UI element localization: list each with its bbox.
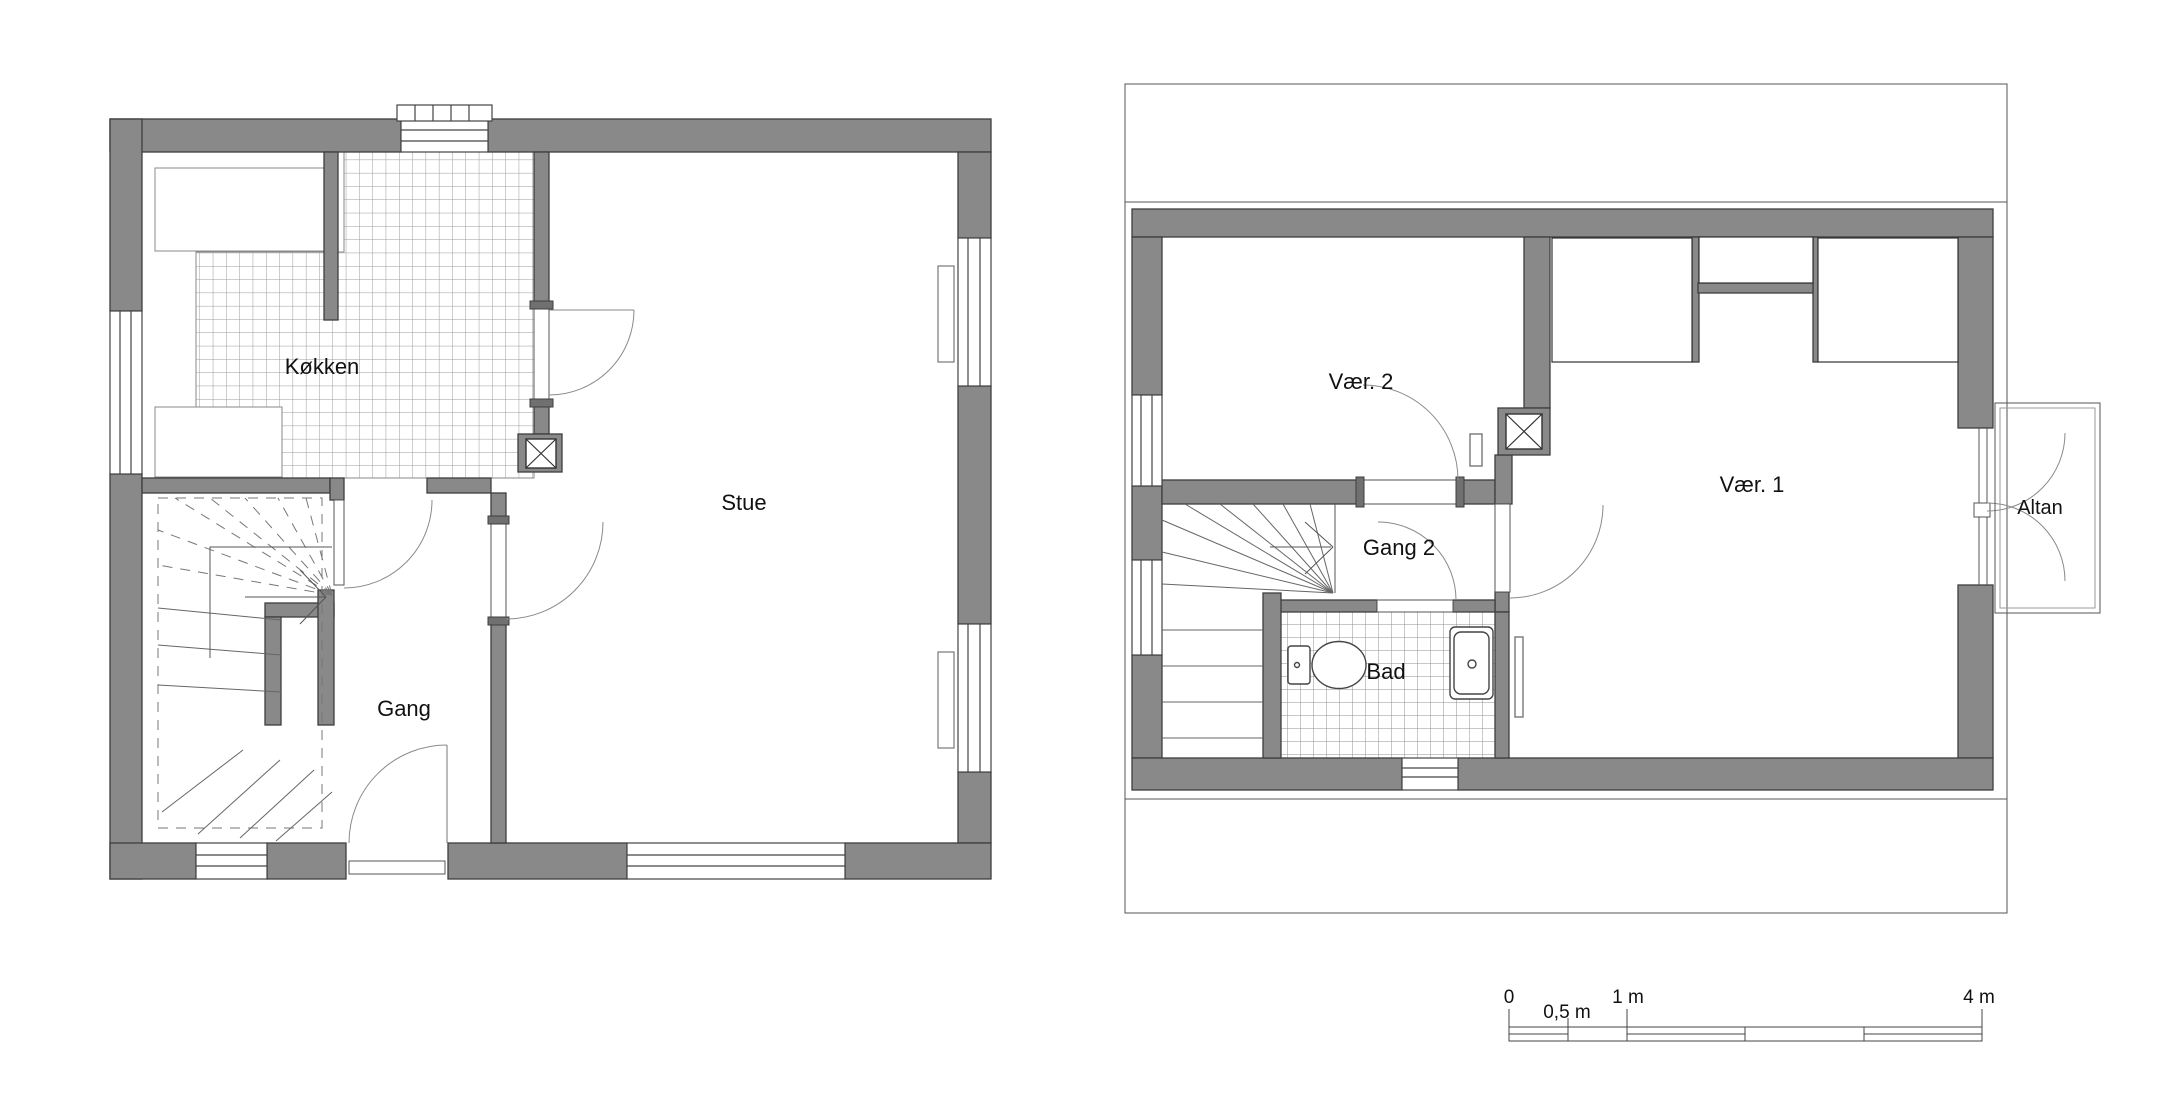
stair-direction-arrow-upper: [1270, 522, 1333, 574]
room-label-gang2: Gang 2: [1363, 535, 1435, 560]
duct-shaft-icon-upper: [1506, 414, 1542, 449]
window-bottom-1: [196, 843, 267, 879]
scale-label-1m: 1 m: [1612, 987, 1644, 1008]
bad-right-wall: [1495, 612, 1509, 758]
kitchen-stue-wall-upper: [534, 152, 549, 308]
scale-label-05m: 0,5 m: [1543, 1002, 1591, 1023]
door-kitchen-to-gang: [334, 500, 432, 588]
floorplan-sheet: Køkken Stue Gang: [0, 0, 2174, 1100]
window-bathroom: [1402, 758, 1458, 790]
room-label-living-room: Stue: [721, 490, 766, 515]
radiator: [938, 266, 954, 362]
stair-treads-below-cut: [158, 608, 332, 841]
scale-label-0: 0: [1504, 987, 1515, 1008]
vaer1-closets: [1552, 237, 1958, 362]
bathtub-icon: [1450, 627, 1493, 699]
door-vaer1: [1495, 504, 1603, 598]
floorplan-canvas: Køkken Stue Gang: [0, 0, 2174, 1100]
understair-closet-right: [318, 590, 334, 725]
door-vaer2: [1356, 385, 1464, 507]
stair-bad-wall: [1263, 593, 1281, 758]
room-label-vaer1: Vær. 1: [1720, 472, 1785, 497]
room-label-vaer2: Vær. 2: [1329, 369, 1394, 394]
window-upper-left-2: [1132, 560, 1162, 655]
kitchen-stub-wall: [324, 152, 338, 320]
vaer2-gang2-wall: [1162, 480, 1362, 504]
window-upper-left-1: [1132, 395, 1162, 486]
room-label-bad: Bad: [1366, 659, 1405, 684]
kitchen-gang-wall: [142, 478, 330, 493]
ground-floor-plan: Køkken Stue Gang: [110, 105, 991, 879]
window-top-kitchen: [397, 105, 492, 152]
kitchen-counter: [155, 168, 324, 251]
door-gang-to-stue: [488, 516, 603, 625]
window-left: [110, 311, 142, 474]
window-bottom-2: [627, 843, 845, 879]
room-label-hallway: Gang: [377, 696, 431, 721]
scale-label-4m: 4 m: [1963, 987, 1995, 1008]
front-door: [349, 745, 447, 874]
vaer2-vaer1-wall: [1524, 237, 1550, 408]
closet-middle: [1699, 237, 1813, 283]
window-right-2: [938, 624, 991, 772]
closet-right: [1818, 238, 1958, 362]
toilet-icon: [1288, 642, 1366, 689]
radiator: [938, 652, 954, 748]
duct-shaft-icon: [526, 439, 556, 468]
door-kitchen-to-stue: [530, 301, 634, 407]
kitchen-tiled-floor: [155, 152, 534, 478]
room-label-altan: Altan: [2017, 497, 2063, 519]
bad-top-wall: [1273, 600, 1377, 612]
room-label-kitchen: Køkken: [285, 354, 360, 379]
scale-bar: 0 0,5 m 1 m 4 m: [1504, 987, 1995, 1041]
radiator-vaer1: [1515, 637, 1523, 717]
understair-closet-left: [265, 617, 281, 725]
kitchen-island-counter: [155, 407, 282, 477]
upper-floor-plan: Vær. 2 Vær. 1 Gang 2 Bad Altan: [1125, 84, 2100, 913]
ground-floor-staircase: [158, 498, 332, 841]
radiator-vaer2: [1470, 434, 1482, 466]
closet-left: [1552, 238, 1692, 362]
window-right-1: [938, 238, 991, 386]
gang-stue-wall-lower: [491, 619, 506, 843]
